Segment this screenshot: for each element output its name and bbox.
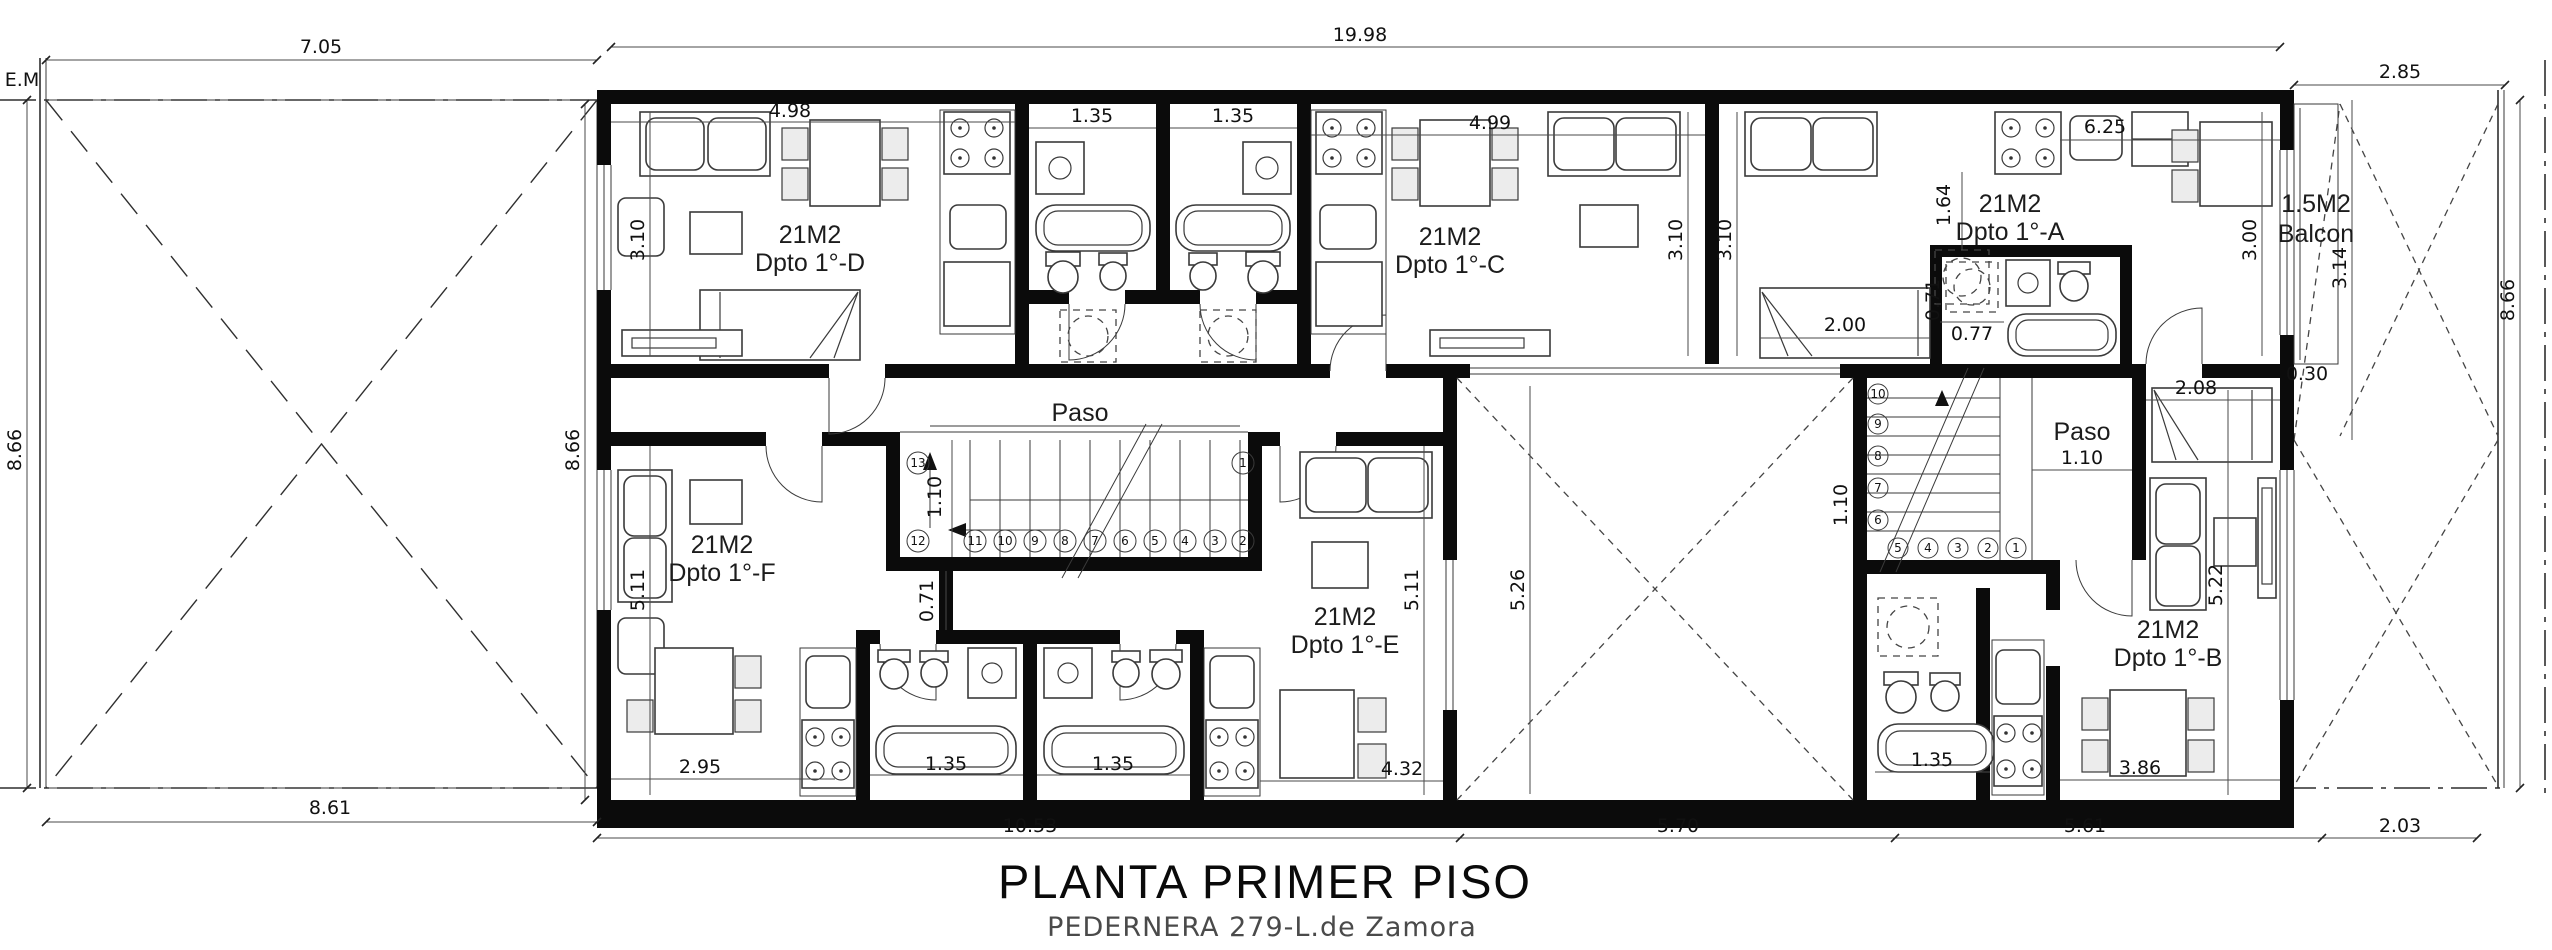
- dim-unit-d-width: 4.98: [769, 100, 811, 122]
- fridge-icon: [1316, 262, 1382, 326]
- stair-break-line: [1062, 424, 1162, 578]
- coffee-table-icon: [1312, 542, 1368, 588]
- dim-bottom-building: 10.53: [1003, 815, 1057, 837]
- toilet-icon: [1246, 252, 1280, 293]
- balcony-name-label: Balcon: [2278, 220, 2354, 248]
- floor-plan-canvas: E.M: [0, 0, 2552, 950]
- sofa-icon: [1745, 112, 1877, 176]
- stove-icon: [1994, 716, 2042, 786]
- dim-bottom-unit-b: 5.61: [2064, 815, 2106, 837]
- step-number: 10: [997, 534, 1012, 548]
- plan-subtitle: PEDERNERA 279-L.de Zamora: [1047, 912, 1477, 943]
- tv-cabinet-icon: [1430, 330, 1550, 356]
- kitchen-icon: [1311, 110, 1386, 334]
- dim-bath-d2: 1.35: [1212, 105, 1254, 127]
- bidet-icon: [1189, 253, 1217, 290]
- unit-b-name-label: Dpto 1°-B: [2114, 644, 2223, 672]
- main-stair-numbers: 1 2 3 4 5 6 7 8 9 10 11 12 13: [907, 452, 1254, 552]
- dim-unit-a-living-height: 3.00: [2239, 219, 2261, 261]
- sofa-icon: [2150, 478, 2206, 610]
- bathroom-sink-icon: [1044, 648, 1092, 698]
- step-number: 10: [1870, 387, 1885, 401]
- bed-icon: [2152, 388, 2272, 462]
- dim-lot-left: 8.66: [4, 429, 26, 471]
- kitchen-icon: [940, 110, 1015, 334]
- unit-a-name-label: Dpto 1°-A: [1956, 218, 2065, 246]
- kitchen-sink-icon: [1210, 656, 1254, 708]
- dim-stair-main-wall: 0.71: [916, 580, 938, 622]
- left-patio: [46, 100, 597, 788]
- step-number: 13: [910, 456, 925, 470]
- bidet-icon: [1112, 651, 1140, 687]
- balcony-area-label: 1.5M2: [2281, 190, 2350, 218]
- step-number: 2: [1239, 534, 1247, 548]
- dim-bottom-right: 2.03: [2379, 815, 2421, 837]
- step-number: 7: [1874, 481, 1882, 495]
- dim-unit-d-height: 3.10: [627, 219, 649, 261]
- title-block: PLANTA PRIMER PISO PEDERNERA 279-L.de Za…: [998, 855, 1532, 943]
- dim-unit-a-kitchen: 6.25: [2084, 116, 2126, 138]
- dim-top-patio: 7.05: [300, 36, 342, 58]
- dim-unit-e-width: 4.32: [1381, 758, 1423, 780]
- step-number: 6: [1874, 513, 1882, 527]
- door-arc-icon: [2076, 560, 2132, 616]
- stair-arrow-icon: [948, 523, 966, 537]
- bathroom-sink-icon: [968, 648, 1016, 698]
- right-staircase: [1867, 368, 2032, 572]
- patio-cross-icon: [2294, 440, 2498, 786]
- bathroom-c: [1176, 142, 1291, 362]
- unit-f-name-label: Dpto 1°-F: [668, 559, 775, 587]
- dim-bath-e: 1.35: [1092, 753, 1134, 775]
- bathroom-sink-icon: [1036, 142, 1084, 194]
- dim-unit-a-left-height: 3.10: [1714, 219, 1736, 261]
- step-number: 4: [1181, 534, 1189, 548]
- right-stair-numbers: 1 2 3 4 5 6 7 8 9 10: [1868, 384, 2026, 558]
- paso-right-label: Paso: [2054, 418, 2111, 446]
- unit-f-room: [618, 470, 856, 796]
- dim-top-right: 2.85: [2379, 61, 2421, 83]
- dim-balcony-depth: 0.30: [2286, 363, 2328, 385]
- dim-unit-c-height: 3.10: [1665, 219, 1687, 261]
- shower-icon: [1878, 598, 1938, 656]
- step-number: 2: [1984, 541, 1992, 555]
- bathtub-icon: [1036, 205, 1150, 251]
- toilet-icon: [1046, 252, 1080, 293]
- kitchen-sink-icon: [1996, 650, 2040, 704]
- dim-unit-a-bath-width: 0.77: [1951, 323, 1993, 345]
- step-number: 1: [2012, 541, 2020, 555]
- dim-paso-right-width: 1.10: [2061, 447, 2103, 469]
- step-number: 4: [1924, 541, 1932, 555]
- dim-unit-b-bath: 1.35: [1911, 749, 1953, 771]
- unit-d-name-label: Dpto 1°-D: [755, 249, 865, 277]
- step-number: 6: [1121, 534, 1129, 548]
- dim-lot-right: 8.66: [2497, 279, 2519, 321]
- dim-building-left: 8.66: [562, 429, 584, 471]
- dim-unit-e-height: 5.11: [1401, 569, 1423, 611]
- tv-cabinet-icon: [622, 330, 742, 356]
- dim-stair-main-width: 1.10: [924, 476, 946, 518]
- step-number: 9: [1874, 417, 1882, 431]
- washer-icon: [1060, 310, 1116, 362]
- kitchen-sink-icon: [1320, 205, 1376, 249]
- dining-table-icon: [782, 120, 908, 206]
- dim-top-building: 19.98: [1333, 24, 1387, 46]
- paso-left-label: Paso: [1052, 399, 1109, 427]
- door-arc-icon: [2146, 308, 2202, 364]
- dim-stair-right-width: 1.10: [1830, 484, 1852, 526]
- door-arc-icon: [766, 446, 822, 502]
- bathtub-icon: [1176, 205, 1290, 251]
- bathroom-d: [1036, 142, 1150, 362]
- dim-unit-b-bed: 2.08: [2175, 377, 2217, 399]
- unit-c-area-label: 21M2: [1419, 223, 1482, 251]
- dim-unit-a-bed: 2.00: [1824, 314, 1866, 336]
- dim-unit-b-table: 3.86: [2119, 757, 2161, 779]
- step-number: 8: [1874, 449, 1882, 463]
- side-table-icon: [690, 480, 742, 524]
- kitchen-sink-icon: [950, 205, 1006, 249]
- dim-bath-d1: 1.35: [1071, 105, 1113, 127]
- step-number: 1: [1239, 456, 1247, 470]
- step-number: 8: [1061, 534, 1069, 548]
- side-table-icon: [690, 212, 742, 254]
- unit-f-area-label: 21M2: [691, 531, 754, 559]
- sofa-icon: [1548, 112, 1680, 176]
- step-number: 5: [1151, 534, 1159, 548]
- tv-cabinet-icon: [2258, 478, 2276, 598]
- patio-cross-icon: [2340, 104, 2498, 436]
- kitchen-icon: [1204, 648, 1260, 796]
- washer-icon: [1200, 310, 1256, 362]
- fridge-icon: [944, 262, 1010, 326]
- dim-bottom-patio: 8.61: [309, 797, 351, 819]
- toilet-icon: [1150, 650, 1182, 689]
- unit-b-area-label: 21M2: [2137, 616, 2200, 644]
- dim-unit-a-bath-height: 0.71: [1922, 279, 1944, 321]
- dining-table-icon: [1280, 690, 1386, 778]
- step-number: 3: [1211, 534, 1219, 548]
- dim-courtyard-height: 5.26: [1507, 569, 1529, 611]
- toilet-icon: [2058, 262, 2090, 301]
- step-number: 5: [1894, 541, 1902, 555]
- dim-unit-b-height: 5.22: [2205, 564, 2227, 606]
- dim-unit-c-width: 4.99: [1469, 112, 1511, 134]
- dim-unit-a-laundry: 1.64: [1933, 184, 1955, 226]
- step-number: 12: [910, 534, 925, 548]
- bathroom-sink-icon: [1243, 142, 1291, 194]
- bidet-icon: [920, 651, 948, 687]
- plan-title: PLANTA PRIMER PISO: [998, 855, 1532, 908]
- step-number: 9: [1031, 534, 1039, 548]
- unit-c-name-label: Dpto 1°-C: [1395, 251, 1505, 279]
- kitchen-sink-icon: [806, 656, 850, 708]
- step-number: 7: [1091, 534, 1099, 548]
- unit-c-room: [1311, 110, 1680, 356]
- bidet-icon: [1099, 253, 1127, 290]
- coffee-table-icon: [2214, 518, 2256, 566]
- bathroom-sink-icon: [2006, 260, 2050, 306]
- toilet-icon: [878, 650, 910, 689]
- step-number: 11: [967, 534, 982, 548]
- bathtub-icon: [2008, 314, 2116, 356]
- unit-a-bathroom: [2006, 260, 2116, 356]
- unit-a-area-label: 21M2: [1979, 190, 2042, 218]
- unit-e-area-label: 21M2: [1314, 603, 1377, 631]
- bidet-icon: [1930, 673, 1960, 711]
- door-arc-icon: [829, 378, 885, 434]
- toilet-icon: [1884, 672, 1918, 713]
- kitchen-icon: [800, 648, 856, 796]
- patio-cross-icon: [46, 100, 597, 788]
- dim-unit-f-width: 2.95: [679, 756, 721, 778]
- sofa-icon: [1300, 452, 1432, 518]
- dim-bottom-courtyard: 5.70: [1657, 815, 1699, 837]
- dim-bath-f: 1.35: [925, 753, 967, 775]
- floor-plan-drawing: E.M: [0, 0, 2552, 950]
- kitchen-icon: [1992, 640, 2044, 795]
- step-number: 3: [1954, 541, 1962, 555]
- dim-balcony-height: 3.14: [2329, 247, 2351, 289]
- unit-d-area-label: 21M2: [779, 221, 842, 249]
- em-label: E.M: [5, 69, 39, 91]
- dim-unit-f-height: 5.11: [627, 569, 649, 611]
- unit-e-name-label: Dpto 1°-E: [1291, 631, 1400, 659]
- coffee-table-icon: [1580, 205, 1638, 247]
